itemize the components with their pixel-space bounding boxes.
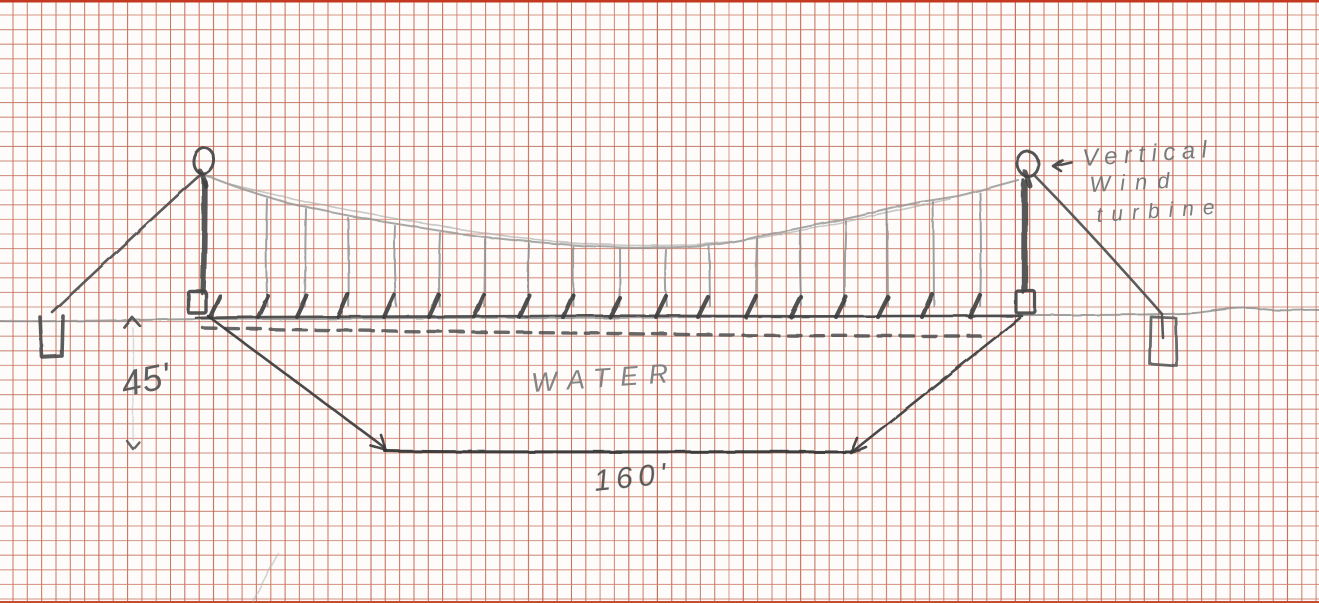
svg-text:Wind: Wind	[1089, 167, 1180, 197]
